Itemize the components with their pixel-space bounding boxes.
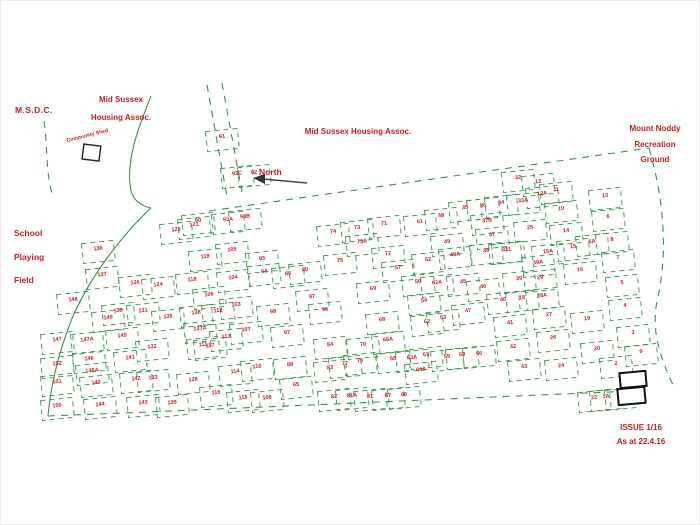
plot-number: 61 — [417, 219, 424, 226]
plot-number: 27 — [546, 312, 553, 319]
plot-number: 64A — [416, 366, 427, 373]
label-school-playing-field: School Playing Field — [14, 222, 44, 293]
plot-number: 21 — [505, 247, 512, 254]
plot-outline — [83, 396, 117, 419]
plot-outline — [346, 336, 380, 359]
plot-outline — [501, 169, 535, 192]
plot-number: 69 — [370, 286, 377, 293]
plot-outline — [605, 274, 639, 297]
plot-outline — [101, 302, 135, 325]
plot-number: 4 — [623, 303, 628, 309]
label-north: North — [259, 167, 282, 177]
plot-outline — [256, 303, 290, 326]
plot-number: 105 — [227, 247, 237, 254]
plot-outline — [493, 314, 527, 337]
plot-number: 108 — [262, 395, 272, 402]
plot-number: 71 — [381, 221, 388, 228]
plot-number: 116 — [211, 390, 221, 397]
plot-number: 56 — [476, 351, 483, 358]
plot-number: 147 — [52, 337, 62, 344]
plot-outline — [446, 273, 480, 296]
plot-number: 37B — [482, 217, 493, 224]
plot-number: 48A — [450, 251, 461, 258]
plot-number: 25 — [527, 225, 534, 232]
plot-number: 82 — [331, 394, 338, 401]
plot-number: 112 — [213, 308, 223, 315]
plot-number: 143 — [138, 400, 148, 407]
plot-number: 47 — [465, 308, 472, 315]
plot-number: 73 — [354, 225, 361, 232]
plot-outline — [250, 389, 284, 412]
plot-outline — [403, 213, 437, 236]
plot-number: 18 — [519, 295, 526, 302]
plot-labels: 9193C929093A93B1211251361371261241181191… — [52, 134, 643, 410]
plot-outline — [451, 302, 485, 325]
plot-outline — [570, 310, 604, 333]
plot-number: 130 — [113, 308, 123, 315]
plot-number: 16 — [577, 267, 584, 274]
plot-outline — [591, 208, 625, 231]
plot-outline — [387, 386, 421, 409]
plot-number: 139 — [167, 400, 177, 407]
plot-number: 140 — [91, 380, 101, 387]
plot-number: 37 — [489, 232, 496, 239]
plot-number: 93C — [232, 170, 243, 177]
plot-number: 66A — [383, 336, 394, 343]
plot-number: 22 — [591, 395, 598, 402]
plot-number: 138 — [191, 310, 201, 317]
plot-outline — [159, 221, 193, 244]
plot-number: 118 — [187, 277, 197, 284]
plot-outline — [40, 331, 74, 354]
plot-number: 50 — [415, 279, 422, 286]
plot-outline — [240, 358, 274, 381]
plot-number: 26 — [550, 335, 557, 342]
plot-number: 5 — [620, 280, 624, 286]
plot-number: 87 — [309, 294, 316, 301]
plot-number: 62 — [424, 319, 431, 326]
plot-number: 146 — [84, 356, 94, 363]
plot-number: 91 — [219, 134, 226, 141]
plot-outline — [313, 336, 347, 359]
plot-number: 75 — [337, 258, 344, 265]
plot-outline — [316, 223, 350, 246]
plot-number: 3 — [631, 330, 635, 336]
plot-number: 35 — [462, 205, 469, 212]
plot-number: 95 — [259, 256, 266, 263]
label-housing-assoc-north: Mid Sussex Housing Assoc. — [273, 127, 443, 136]
plot-number: 80 — [302, 267, 309, 274]
plot-outline — [462, 345, 496, 368]
plot-outline — [188, 248, 222, 271]
plot-number: 141 — [125, 355, 135, 362]
plot-number: 83 — [327, 365, 334, 372]
plot-number: 113 — [221, 334, 231, 341]
plot-number: 39A — [533, 259, 544, 266]
plot-number: 135 — [163, 314, 173, 321]
plot-number: 131 — [138, 308, 148, 315]
plot-outline — [81, 240, 115, 263]
plot-outline — [201, 302, 235, 325]
plot-number: 128 — [188, 377, 198, 384]
plot-number: 86 — [285, 271, 292, 278]
plot-number: 63 — [423, 352, 430, 359]
plot-outline — [273, 356, 307, 379]
site-buildings-symbol — [617, 371, 646, 405]
plot-number: 9 — [639, 349, 643, 355]
plot-number: 68 — [379, 317, 386, 324]
plot-number: 19 — [584, 316, 591, 323]
plot-number: 45 — [460, 279, 467, 286]
plot-number: 15 — [570, 244, 577, 251]
plot-number: 126 — [130, 280, 140, 287]
plot-number: 1A — [602, 394, 610, 401]
plot-number: 11 — [553, 187, 560, 194]
plot-outline — [536, 329, 570, 352]
plot-number: 104 — [228, 274, 239, 281]
plot-number: 103 — [231, 302, 241, 309]
plot-outline — [323, 252, 357, 275]
plot-number: 84 — [327, 342, 335, 349]
plot-number: 137 — [97, 272, 107, 279]
plot-outline — [126, 302, 160, 325]
plot-number: 63A — [407, 354, 418, 361]
plot-number: 28A — [537, 292, 548, 299]
plot-number: 54 — [421, 298, 429, 305]
plot-outline — [136, 369, 170, 392]
plot-number: 6A — [588, 239, 596, 246]
plot-number: 55 — [444, 354, 451, 361]
plot-outline — [563, 261, 597, 284]
plot-outline — [270, 324, 304, 347]
plot-number: 107 — [241, 327, 251, 334]
plot-outline — [496, 338, 530, 361]
community-shed-label: Community Shed — [66, 128, 109, 144]
plot-number: 12A — [537, 190, 548, 197]
plot-outline — [424, 207, 458, 230]
plot-number: 40 — [500, 297, 507, 304]
plot-outline — [575, 233, 609, 256]
plot-outline — [247, 263, 281, 286]
plot-number: 114 — [230, 368, 240, 375]
plot-number: 146A — [85, 367, 99, 374]
plot-number: 136 — [93, 246, 103, 253]
plot-outline — [608, 297, 642, 320]
plot-number: 24 — [558, 363, 566, 370]
boundary-right — [649, 148, 673, 385]
plot-number: 62A — [432, 279, 443, 286]
plot-number: 59 — [459, 352, 466, 359]
plot-number: 53 — [440, 315, 447, 322]
plot-number: 97 — [284, 330, 291, 337]
boundary-bottom — [48, 391, 633, 416]
plot-number: 93B — [240, 213, 251, 220]
plot-outline — [371, 331, 405, 354]
plot-outline — [513, 219, 547, 242]
plot-outline — [523, 269, 557, 292]
plot-number: 133 — [148, 375, 158, 382]
plot-outline — [588, 187, 622, 210]
plot-number: 42 — [510, 344, 517, 351]
plot-number: 72 — [385, 251, 392, 258]
plot-number: 32 — [515, 175, 522, 182]
plot-number: 67 — [385, 393, 392, 400]
plot-number: 43 — [521, 364, 528, 371]
plot-number: 148 — [68, 297, 78, 304]
plot-outline — [580, 340, 614, 363]
plot-outline — [502, 270, 536, 293]
community-shed-symbol: Community Shed — [66, 128, 109, 161]
plot-number: 15A — [543, 248, 554, 255]
plot-number: 110 — [252, 364, 262, 371]
plot-number: 49 — [444, 239, 451, 246]
plot-number: 76 — [357, 358, 364, 365]
plot-number: 73A — [357, 238, 368, 245]
plot-number: 6 — [606, 214, 610, 220]
label-recreation-ground: Mount Noddy Recreation Ground — [613, 121, 697, 168]
plot-number: 119 — [200, 254, 210, 261]
plot-outline — [381, 259, 415, 282]
plot-number: 88 — [287, 362, 294, 369]
plot-outline — [70, 331, 104, 354]
plot-outline — [356, 280, 390, 303]
plot-outline — [486, 291, 520, 314]
plot-outline — [317, 388, 351, 411]
plot-number: 124 — [153, 281, 164, 288]
plot-outline — [343, 352, 377, 375]
plot-outline — [183, 320, 217, 343]
plot-number: 121 — [189, 222, 199, 229]
plot-outline — [507, 358, 541, 381]
plot-number: 8 — [610, 237, 614, 243]
plot-number: 106 — [204, 292, 214, 299]
plot-outline — [40, 397, 74, 420]
plot-outline — [365, 311, 399, 334]
plot-number: 144 — [95, 401, 106, 408]
plot-outline — [226, 389, 260, 412]
plot-number: 147A — [80, 336, 94, 343]
plot-number: 111 — [198, 342, 207, 349]
plot-outline — [469, 242, 503, 265]
plot-number: 142 — [131, 376, 141, 383]
plot-number: 137A — [193, 325, 207, 332]
plot-outline — [556, 238, 590, 261]
plot-number: 33A — [518, 197, 529, 204]
plot-number: 132 — [147, 344, 157, 351]
label-housing-assoc-west: Mid Sussex Housing Assoc. — [73, 91, 169, 127]
plot-outline — [155, 394, 189, 417]
plot-number: 66 — [401, 392, 408, 399]
plot-number: 94 — [261, 269, 269, 276]
plot-outline — [466, 278, 500, 301]
plot-number: 74 — [330, 229, 338, 236]
plot-number: 48 — [438, 213, 445, 220]
plot-number: 58 — [390, 356, 397, 363]
plot-number: 29 — [537, 275, 544, 282]
plot-outline — [279, 376, 313, 399]
plot-number: 93A — [223, 216, 234, 223]
plot-number: 149 — [103, 315, 113, 322]
plot-outline — [113, 349, 147, 372]
plot-number: 39 — [516, 276, 523, 283]
plot-number: 145 — [117, 333, 127, 340]
entrance-path-west — [207, 85, 227, 197]
plot-number: 65 — [293, 382, 300, 389]
label-msdc: M.S.D.C. — [15, 105, 53, 115]
plot-outline — [40, 355, 74, 378]
plot-outline — [176, 371, 210, 394]
plot-outline — [141, 276, 175, 299]
plot-number: 150 — [52, 403, 62, 410]
plot-number: 125 — [171, 227, 181, 234]
plot-number: 77 — [342, 361, 349, 368]
plot-number: 70 — [360, 342, 367, 349]
label-issue-version: ISSUE 1/16 As at 22.4.16 — [595, 421, 687, 449]
plot-outline — [216, 269, 250, 292]
plot-outline — [219, 296, 253, 319]
plot-outline — [79, 374, 113, 397]
plot-number: 152 — [52, 361, 62, 368]
plot-number: 57 — [395, 265, 402, 272]
plot-number: 13 — [602, 193, 609, 200]
plot-number: 12 — [535, 179, 542, 186]
plot-outline — [367, 215, 401, 238]
plot-outline — [199, 384, 233, 407]
plot-number: 81 — [367, 394, 374, 401]
plot-number: 10 — [558, 206, 565, 213]
plot-outline — [85, 266, 119, 289]
boundary-left-top — [44, 121, 53, 197]
plot-number: 115 — [238, 395, 248, 402]
plot-number: 36 — [480, 203, 487, 210]
plot-number: 2 — [614, 361, 618, 367]
plot-number: 92 — [251, 170, 258, 177]
plot-outline — [353, 388, 387, 411]
plot-outline — [40, 373, 74, 396]
plot-outline — [521, 254, 555, 277]
plot-outline — [308, 301, 342, 324]
plot-number: 7 — [616, 255, 620, 261]
plot-outline — [56, 291, 90, 314]
plot-number: 52 — [425, 257, 432, 264]
plot-outline — [118, 274, 152, 297]
plot-number: 81A — [347, 392, 358, 399]
plot-number: 46 — [480, 284, 487, 291]
plot-number: 96 — [322, 307, 329, 314]
plot-outline — [544, 357, 578, 380]
plot-outline — [218, 363, 252, 386]
plot-number: 20 — [594, 346, 601, 353]
allotment-site-plan: 9193C929093A93B1211251361371261241181191… — [0, 0, 700, 525]
plot-number: 41 — [507, 320, 514, 327]
plot-outline — [549, 222, 583, 245]
plot-outline — [448, 199, 482, 222]
plot-number: 34 — [498, 200, 506, 207]
plot-number: 151 — [52, 379, 62, 386]
plot-number: 14 — [563, 228, 571, 235]
plot-number: 98 — [270, 309, 277, 316]
plot-number: 38 — [483, 248, 490, 255]
